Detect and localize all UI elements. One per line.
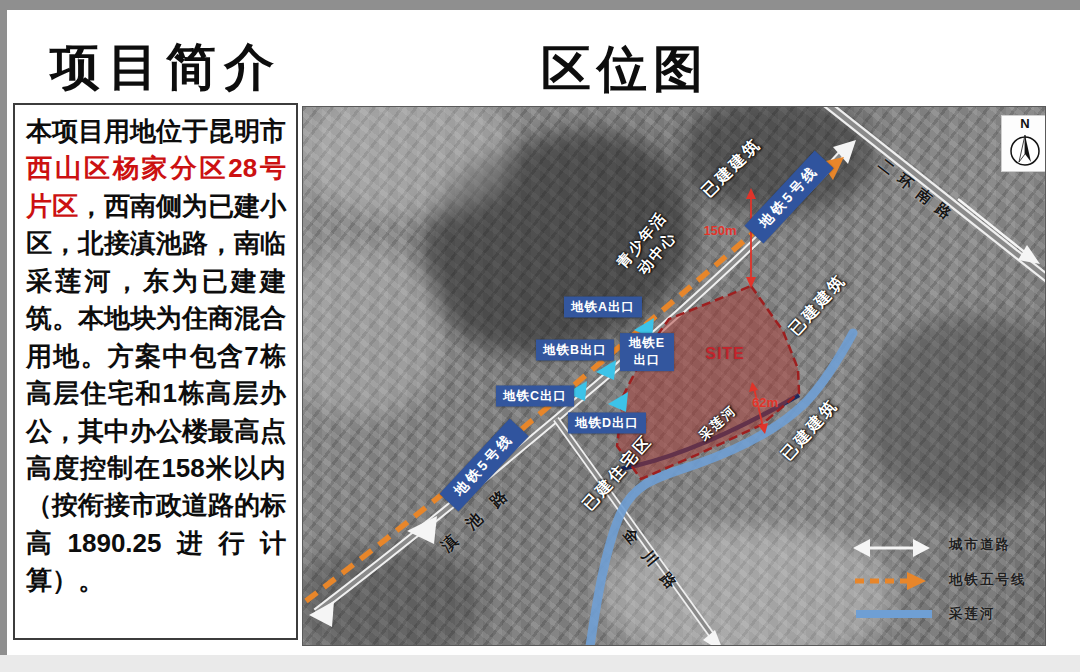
metro-exit-a-badge: 地铁A出口 (564, 297, 642, 318)
project-description-box: 本项目用地位于昆明市西山区杨家分区28号片区，西南侧为已建小区，北接滇池路，南临… (13, 103, 298, 640)
legend-metro-arrow (907, 572, 926, 590)
map-overlay-graphics (303, 107, 1045, 645)
project-intro-title: 项目简介 (50, 34, 282, 101)
dim-150m-arrow-top (746, 188, 756, 199)
legend-river-label: 采莲河 (949, 605, 996, 623)
legend-road-arrow-right (913, 539, 930, 557)
metro-exit-e-badge: 地铁E出口 (620, 333, 674, 371)
metro-exit-c-badge: 地铁C出口 (496, 386, 574, 407)
description-pre: 本项目用地位于昆明市 (26, 116, 286, 146)
dim-150m-label: 150m (703, 223, 736, 238)
metro-exit-d-badge: 地铁D出口 (568, 413, 646, 434)
legend-road-label: 城市道路 (949, 536, 1011, 554)
compass-needle-icon (1005, 131, 1045, 171)
description-post: ，西南侧为已建小区，北接滇池路，南临采莲河，东为已建建筑。本地块为住商混合用地。… (26, 191, 286, 595)
exit-d-pointer-icon (608, 392, 628, 412)
compass-rose: N (1001, 115, 1046, 172)
dim-62m-label: 62m (752, 395, 778, 410)
project-description-text: 本项目用地位于昆明市西山区杨家分区28号片区，西南侧为已建小区，北接滇池路，南临… (26, 113, 286, 600)
legend-road-arrow-left (853, 539, 870, 557)
legend-metro-label: 地铁五号线 (949, 571, 1027, 589)
site-label: SITE (705, 345, 745, 363)
page-border-bottom (0, 655, 1080, 672)
location-map: 已建建筑 已建建筑 已建建筑 已建住宅区 青少年活 动中心 采莲河 地铁5号线 … (302, 106, 1046, 646)
compass-north-label: N (1002, 117, 1046, 131)
erhuan-direction-arrow-shaft (958, 199, 1027, 254)
metro-exit-b-badge: 地铁B出口 (536, 340, 614, 361)
location-map-title: 区位图 (541, 36, 709, 103)
page-border-left (0, 0, 7, 660)
page-border-top (0, 0, 1080, 10)
